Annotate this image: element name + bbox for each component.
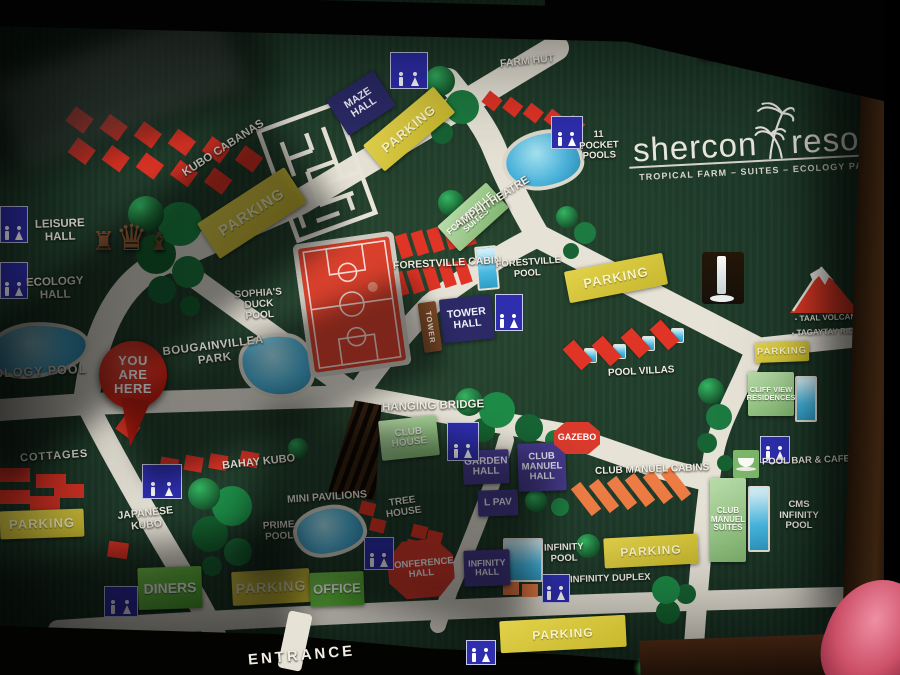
restroom-icon <box>104 586 138 617</box>
parking-sign: PARKING <box>231 568 311 606</box>
tree-grove <box>188 478 220 510</box>
cms-infinity-pool-label: CMS INFINITY POOL <box>772 500 826 532</box>
japanese-kubo-unit <box>107 541 129 560</box>
diners-sign: DINERS <box>137 566 202 610</box>
cliff-view-pool-rect <box>795 376 817 422</box>
taal-volcano-icon <box>786 263 864 315</box>
logo-brand-right: resort <box>790 121 882 157</box>
coffee-cup-icon <box>733 450 759 478</box>
cms-infinity-pool-rect <box>748 486 770 552</box>
restroom-icon <box>142 464 182 499</box>
gazebo-sign: GAZEBO <box>554 422 600 454</box>
parking-sign: PARKING <box>0 509 84 540</box>
club-house-sign: CLUB HOUSE <box>378 415 440 461</box>
club-manuel-hall-sign: CLUB MANUEL HALL <box>517 442 567 492</box>
map-board: shercon resort TROPICAL FARM – SUITES – … <box>0 0 900 675</box>
forestville-pool-label: FORESTVILLE POOL <box>495 256 558 282</box>
infinity-hall-sign: INFINITY HALL <box>463 549 510 587</box>
logo-brand-left: shercon <box>632 128 758 166</box>
restroom-icon <box>0 262 28 299</box>
resort-map-photo: shercon resort TROPICAL FARM – SUITES – … <box>0 0 900 675</box>
cliff-view-residences-sign: CLIFF VIEW RESIDENCES <box>748 372 794 416</box>
prime-pool-label: PRIME POOL <box>255 519 302 544</box>
waterfall-photo <box>702 252 744 304</box>
restroom-icon <box>390 52 428 89</box>
restroom-icon <box>447 422 479 461</box>
giant-chess-pieces: ♜♛♝ <box>92 218 170 259</box>
pocket-pools-label: 11 POCKET POOLS <box>574 129 623 163</box>
restroom-icon <box>542 574 570 603</box>
leisure-hall-label: LEISURE HALL <box>34 217 87 245</box>
club-manuel-suites-sign: CLUB MANUEL SUITES <box>710 478 746 562</box>
you-are-here-marker: YOU ARE HERE <box>99 341 169 409</box>
office-sign: OFFICE <box>309 571 364 607</box>
tower-hall-sign: TOWER HALL <box>439 294 495 343</box>
restroom-icon <box>495 294 523 331</box>
tree-grove <box>525 490 547 512</box>
ecology-hall-label: ECOLOGY HALL <box>26 275 85 303</box>
infinity-duplex-unit <box>522 584 538 597</box>
infinity-pool-label: INFINITY POOL <box>540 542 589 565</box>
tree-grove <box>698 378 724 404</box>
cottage-unit <box>0 468 30 482</box>
basketball-court <box>292 231 412 379</box>
l-pav-sign: L PAV <box>478 489 519 516</box>
resort-logo: shercon resort TROPICAL FARM – SUITES – … <box>626 96 887 182</box>
sophias-duck-pool-label: SOPHIA'S DUCK POOL <box>229 286 289 324</box>
restroom-icon <box>364 537 394 570</box>
parking-sign: PARKING <box>603 534 698 569</box>
restroom-icon <box>0 206 28 243</box>
parking-sign: PARKING <box>755 341 810 363</box>
tree-grove <box>556 206 578 228</box>
